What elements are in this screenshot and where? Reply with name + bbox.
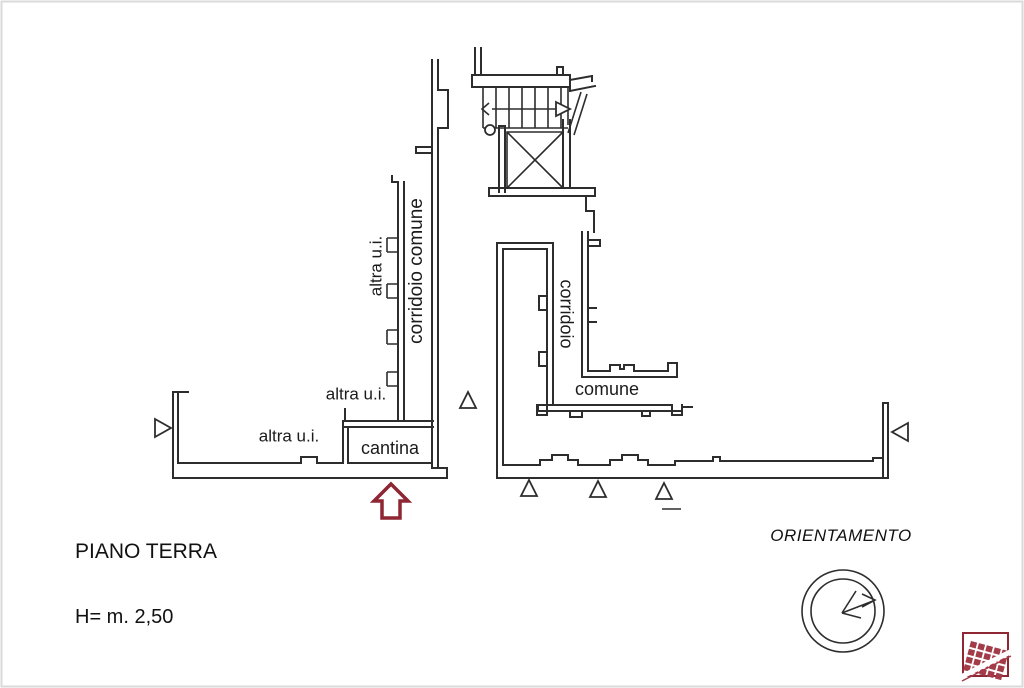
page-border [2,2,1023,687]
stair-newel-post [485,125,495,135]
entrance-arrow-icon [374,484,408,518]
agency-logo-icon [959,633,1011,681]
right-section-walls [497,232,692,478]
label-cantina: cantina [361,438,420,458]
triangle-marker-bottom-2 [590,481,606,497]
compass-icon: ORIENTAMENTO [770,526,911,652]
floor-plan-page: altra u.i. corridoio comune altra u.i. a… [0,0,1024,688]
orientation-title: ORIENTAMENTO [770,526,911,545]
label-comune: comune [575,379,639,399]
triangle-marker-bottom-1 [521,480,537,496]
triangle-marker-left [155,419,171,437]
triangle-marker-bottom-3 [656,483,672,499]
door-markers [155,392,908,509]
floor-title: PIANO TERRA [75,540,217,563]
label-altra-ui-mid: altra u.i. [326,384,386,403]
floor-plan-drawing: altra u.i. corridoio comune altra u.i. a… [0,0,1024,688]
elevator-icon [489,120,595,232]
stairs-icon [472,48,595,135]
label-altra-ui-top: altra u.i. [366,236,385,296]
label-corridoio: corridoio [556,279,576,348]
bottom-right-wall [497,403,888,478]
label-altra-ui-left: altra u.i. [259,426,319,445]
height-note: H= m. 2,50 [75,606,173,628]
triangle-marker-centre [460,392,476,408]
label-corridoio-comune: corridoio comune [406,198,427,344]
triangle-marker-right [892,423,908,441]
